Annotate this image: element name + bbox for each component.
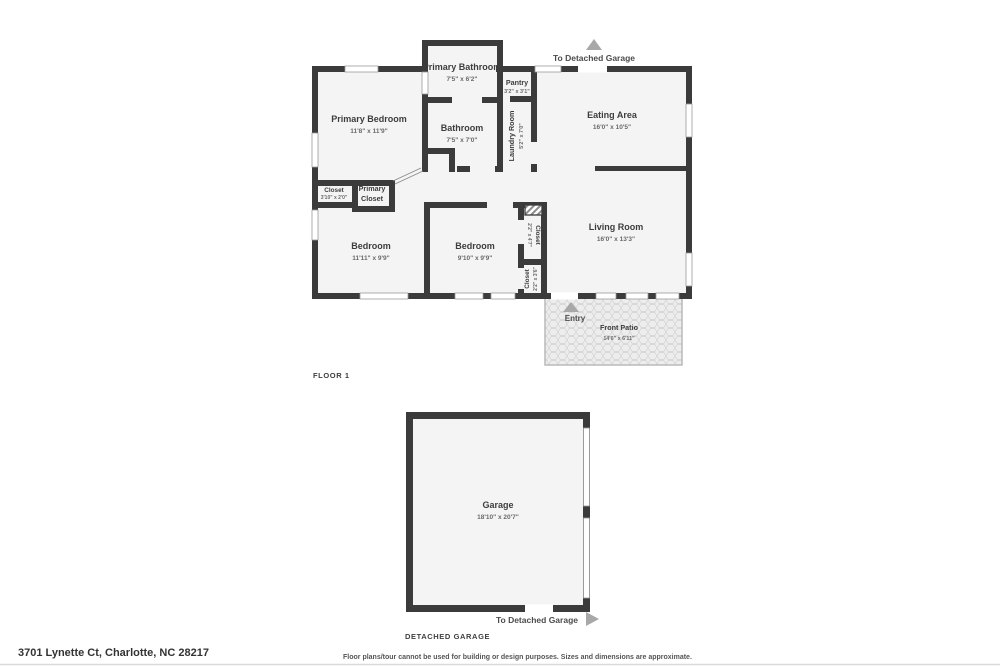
up-arrow-icon xyxy=(586,39,602,50)
room-label-line1: Primary xyxy=(359,184,386,193)
to-garage-bottom-label: To Detached Garage xyxy=(496,615,578,625)
entry-label: Entry xyxy=(565,314,586,323)
room-dims: 14'6" x 6'11" xyxy=(603,336,635,342)
footer: 3701 Lynette Ct, Charlotte, NC 28217 Flo… xyxy=(0,647,1000,665)
room-primary-closet: Primary Closet xyxy=(359,184,386,203)
room-dims: 16'0" x 10'5" xyxy=(593,124,631,131)
right-arrow-icon xyxy=(586,612,599,626)
room-label: Primary Bedroom xyxy=(331,114,407,124)
room-label: Garage xyxy=(482,500,513,510)
room-dims: 5'2" x 7'0" xyxy=(519,123,525,149)
room-label: Laundry Room xyxy=(507,111,516,162)
closet-hatched-area xyxy=(525,205,542,215)
room-label: Closet xyxy=(324,187,344,194)
room-label: Bedroom xyxy=(455,241,495,251)
room-label: Eating Area xyxy=(587,110,638,120)
room-dims: 18'10" x 20'7" xyxy=(477,514,519,521)
room-label: Primary Bathroom xyxy=(423,62,502,72)
room-label: Front Patio xyxy=(600,323,639,332)
room-label: Closet xyxy=(524,268,531,288)
room-label: Closet xyxy=(534,225,541,245)
room-label: Bathroom xyxy=(441,123,484,133)
room-dims: 7'5" x 7'0" xyxy=(447,137,478,144)
to-garage-top-label: To Detached Garage xyxy=(553,53,635,63)
room-dims: 2'2" x 4'7" xyxy=(526,223,532,247)
room-dims: 2'2" x 3'6" xyxy=(533,266,539,290)
room-dims: 11'11" x 9'9" xyxy=(352,255,389,262)
room-dims: 11'8" x 11'9" xyxy=(350,128,387,135)
room-dims: 3'2" x 3'1" xyxy=(504,89,530,95)
to-garage-top: To Detached Garage xyxy=(553,39,635,63)
room-dims: 7'5" x 6'2" xyxy=(447,76,478,83)
room-dims: 16'0" x 13'3" xyxy=(597,236,635,243)
garage-interior xyxy=(406,412,590,612)
floorplan-canvas: Primary Bathroom 7'5" x 6'2" Pantry 3'2"… xyxy=(0,0,1000,666)
garage-plan: Garage 18'10" x 20'7" To Detached Garage… xyxy=(405,412,599,641)
floor1-plan: Primary Bathroom 7'5" x 6'2" Pantry 3'2"… xyxy=(312,39,692,380)
room-dims: 9'10" x 9'9" xyxy=(458,255,493,262)
floor1-label: FLOOR 1 xyxy=(313,371,350,380)
room-label-line2: Closet xyxy=(361,194,384,203)
room-label: Living Room xyxy=(589,222,644,232)
property-address: 3701 Lynette Ct, Charlotte, NC 28217 xyxy=(18,647,209,659)
room-label: Bedroom xyxy=(351,241,391,251)
disclaimer-text: Floor plans/tour cannot be used for buil… xyxy=(343,654,692,661)
detached-garage-label: DETACHED GARAGE xyxy=(405,632,490,641)
room-dims: 3'10" x 2'0" xyxy=(321,195,348,201)
room-pantry: Pantry 3'2" x 3'1" xyxy=(504,78,530,95)
to-garage-bottom: To Detached Garage xyxy=(496,612,599,626)
room-label: Pantry xyxy=(506,78,528,87)
floorplan-page: Primary Bathroom 7'5" x 6'2" Pantry 3'2"… xyxy=(0,0,1000,666)
